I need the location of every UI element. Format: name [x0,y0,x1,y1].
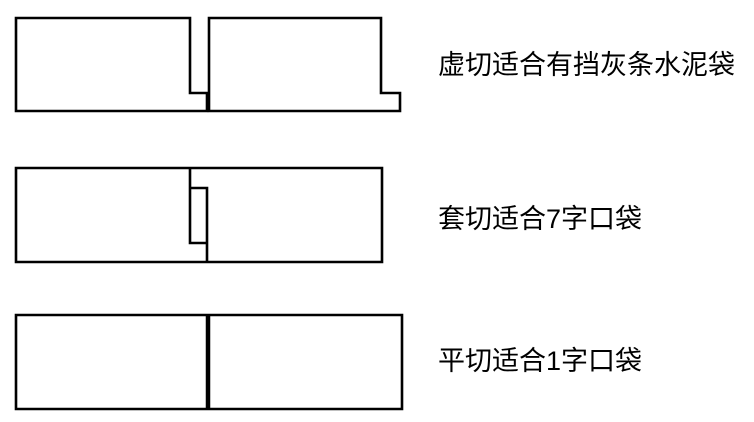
diagram-label-xu-cut: 虚切适合有挡灰条水泥袋 [438,50,735,80]
xu-cut-right-piece [209,18,400,111]
xu-cut-left-piece [16,18,207,111]
diagram-label-ping-cut: 平切适合1字口袋 [438,346,642,376]
tao-cut-outer-rect [16,168,382,262]
tao-cut-cut-line-left [190,168,207,243]
tao-cut-cut-line-right [190,188,207,262]
diagram-label-tao-cut: 套切适合7字口袋 [438,204,642,234]
cut-types-diagram: 虚切适合有挡灰条水泥袋 套切适合7字口袋 平切适合1字口袋 [0,0,754,422]
